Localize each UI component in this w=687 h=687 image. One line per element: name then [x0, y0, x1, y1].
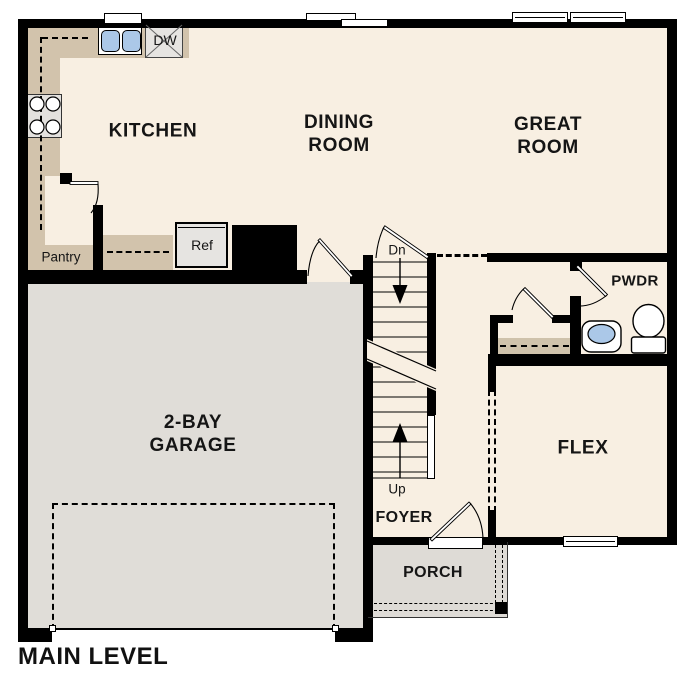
porch-label: PORCH — [403, 564, 463, 582]
stairs-up-label: Up — [388, 482, 405, 497]
ref-label: Ref — [191, 237, 213, 253]
cooktop-burners-icon — [30, 97, 60, 134]
garage-label-line1: 2-BAY — [150, 411, 237, 434]
great-room-label-line2: ROOM — [514, 136, 582, 159]
front-door — [430, 502, 483, 541]
pedestal-sink-icon — [582, 321, 621, 352]
great-room-label: GREAT ROOM — [514, 113, 582, 159]
floor-plan: KITCHEN DINING ROOM GREAT ROOM 2-BAY GAR… — [0, 0, 687, 687]
dining-room-label: DINING ROOM — [304, 111, 374, 157]
garage-entry-door — [308, 239, 353, 278]
pantry-door — [70, 182, 98, 213]
dining-room-label-line1: DINING — [304, 111, 374, 134]
page-title: MAIN LEVEL — [18, 643, 168, 671]
fixtures-overlay — [0, 0, 687, 687]
toilet-icon — [632, 305, 666, 354]
kitchen-label: KITCHEN — [109, 120, 198, 143]
closet-door — [512, 288, 554, 319]
flex-label: FLEX — [558, 437, 609, 460]
pwdr-label: PWDR — [611, 273, 658, 290]
stairs-down-label: Dn — [388, 243, 405, 258]
pantry-label: Pantry — [41, 250, 80, 265]
garage-label: 2-BAY GARAGE — [150, 411, 237, 457]
powder-room-door — [576, 265, 608, 306]
foyer-label: FOYER — [375, 509, 432, 527]
stair-break-line — [367, 339, 436, 391]
garage-label-line2: GARAGE — [150, 434, 237, 457]
dining-room-label-line2: ROOM — [304, 134, 374, 157]
dw-label: DW — [153, 32, 176, 48]
great-room-label-line1: GREAT — [514, 113, 582, 136]
